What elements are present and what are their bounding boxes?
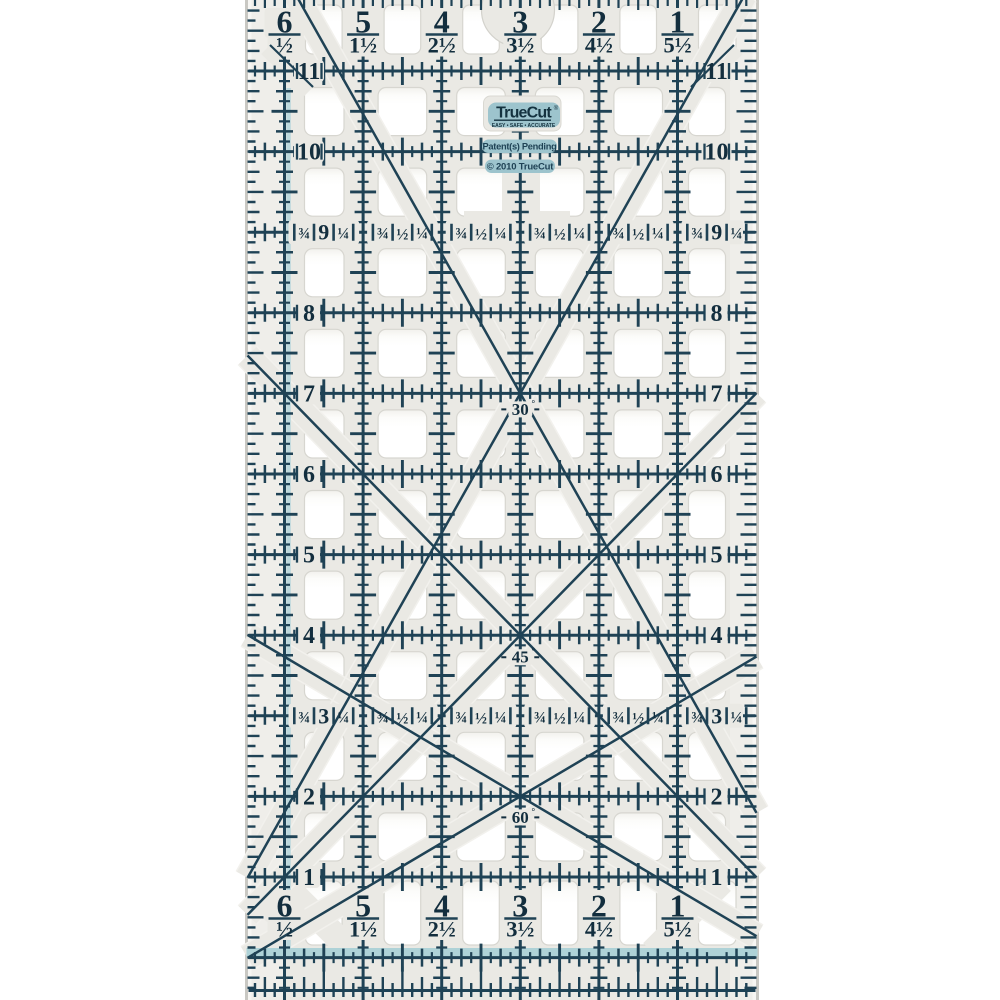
svg-text:¾: ¾ (455, 709, 467, 726)
svg-text:45: 45 (512, 648, 529, 667)
svg-text:°: ° (531, 646, 535, 656)
svg-text:½: ½ (276, 917, 293, 942)
svg-text:¼: ¼ (337, 226, 349, 243)
svg-text:½: ½ (475, 710, 487, 727)
svg-text:½: ½ (632, 227, 644, 244)
svg-text:Patent(s) Pending: Patent(s) Pending (483, 142, 558, 152)
svg-text:TrueCut: TrueCut (496, 105, 552, 122)
svg-text:¾: ¾ (455, 226, 467, 243)
svg-text:30: 30 (512, 400, 529, 419)
svg-text:¼: ¼ (416, 226, 428, 243)
svg-text:½: ½ (396, 710, 408, 727)
svg-text:3: 3 (318, 703, 329, 728)
svg-text:1: 1 (711, 865, 723, 891)
svg-text:6: 6 (303, 462, 315, 488)
svg-text:11: 11 (705, 59, 728, 85)
svg-text:¼: ¼ (495, 226, 507, 243)
svg-text:2: 2 (711, 784, 723, 810)
svg-text:5½: 5½ (663, 33, 691, 58)
svg-text:EASY • SAFE • ACCURATE: EASY • SAFE • ACCURATE (492, 123, 556, 129)
svg-text:3: 3 (711, 703, 722, 728)
svg-text:© 2010 TrueCut: © 2010 TrueCut (487, 162, 555, 173)
svg-text:6: 6 (711, 462, 723, 488)
svg-text:¾: ¾ (534, 709, 546, 726)
svg-text:4½: 4½ (585, 917, 613, 942)
svg-text:¼: ¼ (652, 226, 664, 243)
svg-text:¼: ¼ (573, 226, 585, 243)
svg-text:¾: ¾ (377, 709, 389, 726)
svg-text:°: ° (531, 806, 535, 816)
svg-text:½: ½ (475, 227, 487, 244)
svg-text:¾: ¾ (377, 226, 389, 243)
svg-text:7: 7 (711, 381, 723, 407)
svg-text:¾: ¾ (691, 226, 703, 243)
svg-text:¼: ¼ (731, 709, 743, 726)
svg-text:½: ½ (632, 710, 644, 727)
svg-text:2: 2 (303, 784, 315, 810)
svg-text:3½: 3½ (506, 917, 534, 942)
svg-text:10: 10 (297, 140, 321, 166)
svg-text:2½: 2½ (428, 33, 456, 58)
svg-text:½: ½ (276, 33, 293, 58)
svg-text:¼: ¼ (652, 709, 664, 726)
svg-text:8: 8 (303, 301, 315, 327)
svg-text:7: 7 (303, 381, 315, 407)
svg-text:1½: 1½ (349, 917, 377, 942)
svg-text:¾: ¾ (613, 226, 625, 243)
svg-text:¾: ¾ (298, 709, 310, 726)
svg-text:60: 60 (512, 808, 529, 827)
svg-text:11: 11 (298, 59, 321, 85)
svg-text:°: ° (531, 398, 535, 408)
svg-text:½: ½ (396, 227, 408, 244)
svg-text:9: 9 (711, 220, 722, 245)
svg-text:5½: 5½ (663, 917, 691, 942)
svg-text:4: 4 (711, 623, 723, 649)
svg-text:10: 10 (705, 140, 729, 166)
svg-text:¾: ¾ (691, 709, 703, 726)
svg-text:¼: ¼ (495, 709, 507, 726)
svg-text:¾: ¾ (534, 226, 546, 243)
svg-text:8: 8 (711, 301, 723, 327)
svg-text:2½: 2½ (428, 917, 456, 942)
svg-text:¼: ¼ (731, 226, 743, 243)
svg-text:½: ½ (554, 227, 566, 244)
svg-text:5: 5 (711, 543, 723, 569)
svg-text:1½: 1½ (349, 33, 377, 58)
svg-text:¼: ¼ (573, 709, 585, 726)
svg-text:¼: ¼ (416, 709, 428, 726)
svg-text:9: 9 (318, 220, 329, 245)
svg-text:4½: 4½ (585, 33, 613, 58)
svg-text:½: ½ (554, 710, 566, 727)
svg-text:5: 5 (303, 543, 315, 569)
svg-text:4: 4 (303, 623, 315, 649)
svg-text:®: ® (554, 105, 559, 112)
svg-text:¼: ¼ (337, 709, 349, 726)
svg-text:¾: ¾ (613, 709, 625, 726)
svg-text:1: 1 (303, 865, 315, 891)
svg-text:¾: ¾ (298, 226, 310, 243)
svg-text:3½: 3½ (506, 33, 534, 58)
